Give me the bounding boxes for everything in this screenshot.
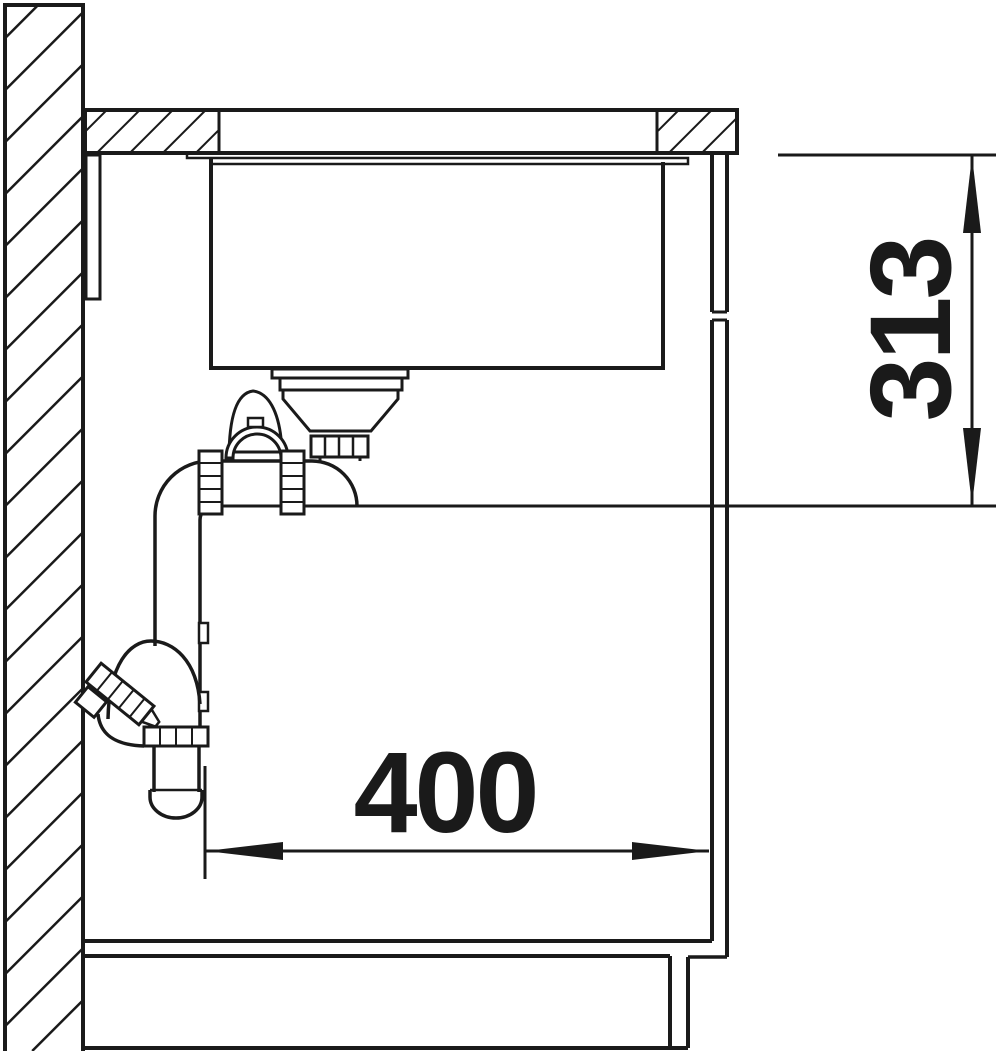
coupling-nut-right	[281, 451, 304, 514]
strainer-funnel	[283, 390, 398, 431]
arrow-left-icon	[206, 842, 283, 860]
countertop	[85, 110, 737, 153]
strainer-nut	[311, 436, 368, 457]
arrow-down-icon	[963, 428, 981, 505]
technical-diagram-page: 313 400	[0, 0, 1000, 1051]
sink-basin	[211, 159, 663, 368]
horizontal-dimension-400: 400	[205, 729, 709, 879]
trap-ring-nut	[144, 727, 208, 746]
sink-bowl	[187, 153, 688, 368]
coupling-nut-left	[199, 451, 222, 514]
countertop-outline	[85, 110, 737, 153]
vertical-dimension-313: 313	[778, 155, 996, 505]
sink-installation-diagram: 313 400	[0, 0, 1000, 1051]
cabinet-side-panel	[712, 153, 727, 957]
vertical-dimension-label: 313	[847, 239, 975, 422]
arrow-right-icon	[632, 842, 709, 860]
wall-outline	[5, 5, 83, 1051]
cabinet-bottom	[84, 941, 727, 1048]
wall-hatching	[6, 6, 82, 1051]
ring-tab	[248, 418, 263, 427]
pipe-clip-upper	[199, 623, 208, 643]
strainer-body-top	[280, 378, 402, 390]
horizontal-dimension-label: 400	[354, 729, 537, 857]
arrow-up-icon	[963, 156, 981, 233]
trap-bottom-cap	[150, 790, 202, 818]
countertop-hatching-right	[658, 111, 736, 152]
countertop-hatching-left	[86, 111, 218, 152]
wall-rail	[86, 155, 100, 299]
wall-section	[5, 5, 83, 1051]
